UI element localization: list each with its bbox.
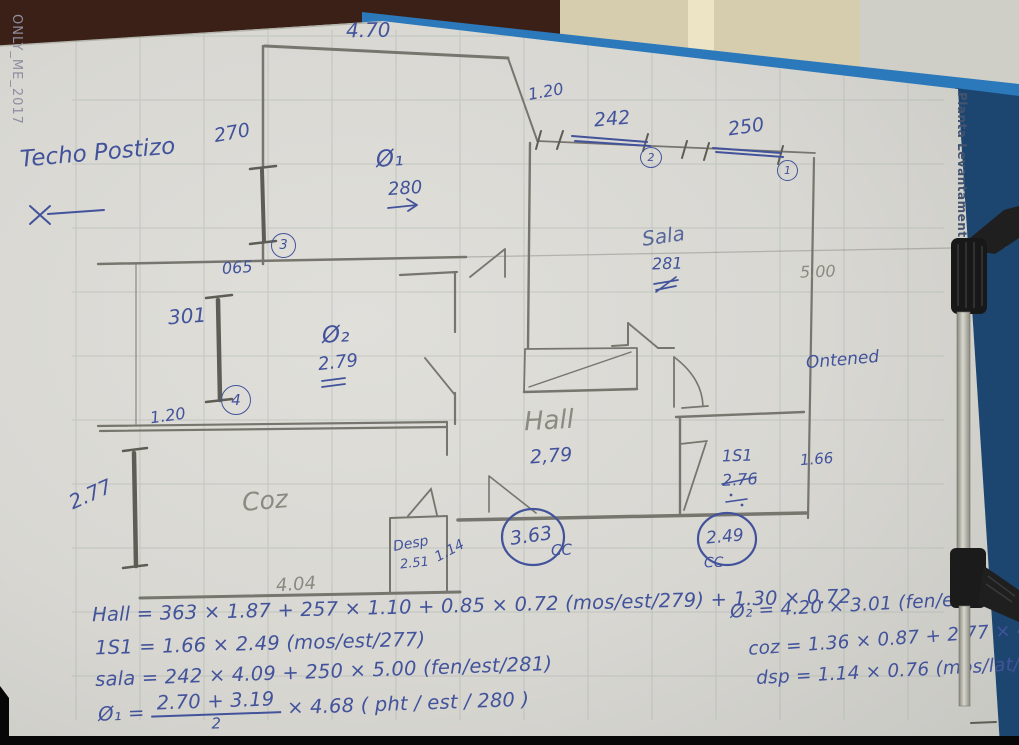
room-height-q2: 2.79 [317, 352, 359, 374]
equation-q1-rhs: × 4.68 ( pht / est / 280 ) [287, 688, 530, 719]
window-callout-3: 3 [271, 233, 296, 258]
room-height-q1: 280 [387, 179, 423, 199]
room-label-sala: Sala [641, 223, 686, 249]
room-label-q1: Ø₁ [375, 147, 404, 172]
dim-window2: 242 [593, 108, 631, 130]
tag-hall-door: CC [551, 542, 573, 558]
dim-sala-width: 5.00 [800, 263, 836, 280]
watermark: ONLY_ME_2017 [10, 14, 23, 125]
dim-window4: 301 [167, 305, 206, 328]
window-callout-2: 2 [640, 147, 662, 168]
photo-of-floorplan-sketch: ONLY_ME_2017 Planta Levantamento 4.70 Te… [0, 0, 1019, 745]
room-height-is1: 2.76 [722, 471, 758, 489]
room-label-is1: 1S1 [722, 447, 753, 464]
room-height-sala: 281 [652, 255, 683, 272]
window-callout-3-number: 3 [279, 238, 287, 253]
dim-window1: 250 [727, 116, 766, 140]
room-height-hall: 2,79 [529, 446, 573, 468]
dim-top-width: 4.70 [346, 20, 391, 41]
window-callout-1: 1 [777, 160, 798, 181]
window-callout-4-number: 4 [231, 391, 241, 409]
window-callout-2-number: 2 [648, 151, 655, 164]
room-label-coz: Coz [241, 486, 289, 515]
window-callout-4: 4 [221, 385, 251, 415]
equation-q1-fraction: 2.70 + 3.19 2 [150, 689, 281, 733]
dim-is1-width: 1.66 [800, 451, 834, 468]
dim-is1-door: 2.49 [705, 527, 744, 547]
room-label-hall: Hall [523, 407, 574, 436]
room-height-desp: 2.51 [399, 556, 429, 572]
dim-coz-width: 4.04 [275, 575, 316, 596]
window-callout-1-number: 1 [784, 164, 791, 177]
room-label-q2: Ø₂ [321, 323, 349, 347]
dim-wall-offset: 065 [221, 259, 253, 277]
side-label: Planta Levantamento [956, 92, 968, 246]
tag-is1-door: CC [704, 556, 724, 571]
equation-q1-lhs: Ø₁ = [98, 701, 145, 726]
